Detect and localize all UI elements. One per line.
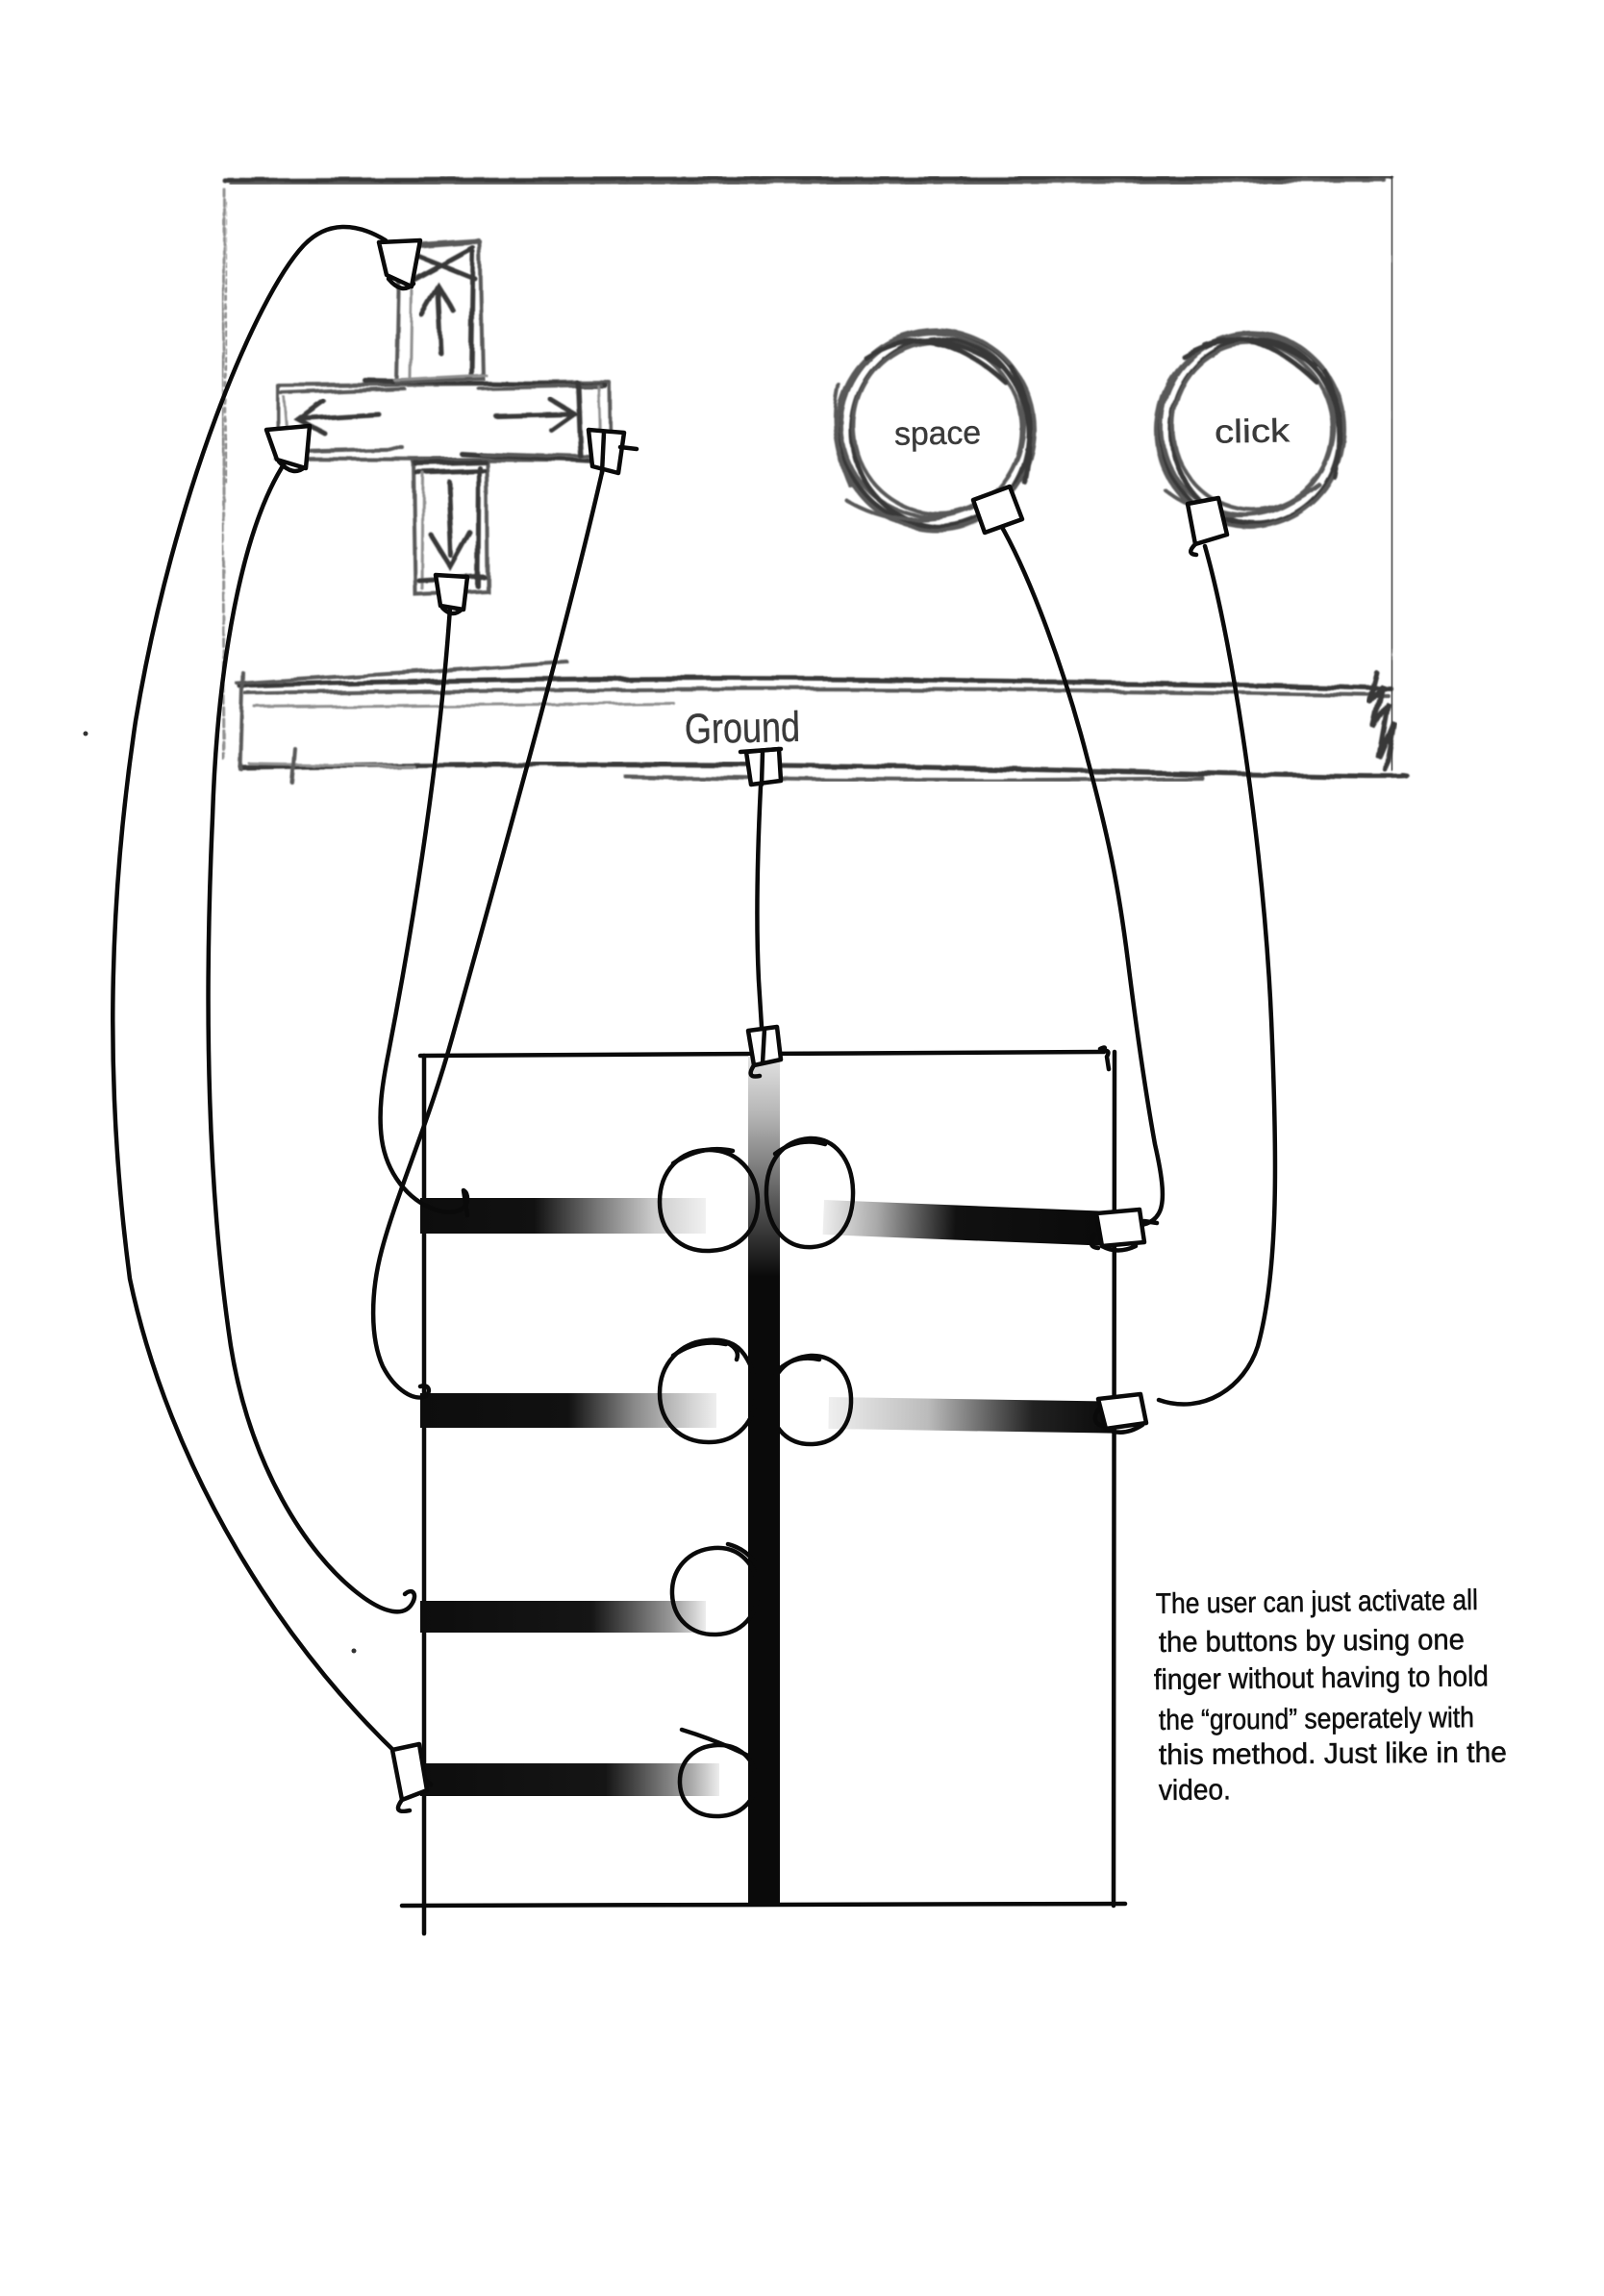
svg-text:video.: video.: [1159, 1774, 1231, 1807]
svg-text:finger without having to hold: finger without having to hold: [1154, 1660, 1489, 1696]
svg-text:the buttons by using one: the buttons by using one: [1159, 1624, 1465, 1659]
svg-text:The user can just activate all: The user can just activate all: [1156, 1585, 1478, 1620]
svg-text:Ground: Ground: [684, 704, 800, 754]
svg-text:this method. Just like in the: this method. Just like in the: [1159, 1736, 1507, 1771]
svg-text:click: click: [1215, 412, 1291, 450]
svg-text:space: space: [894, 414, 982, 453]
svg-text:the “ground” seperately with: the “ground” seperately with: [1159, 1702, 1474, 1736]
